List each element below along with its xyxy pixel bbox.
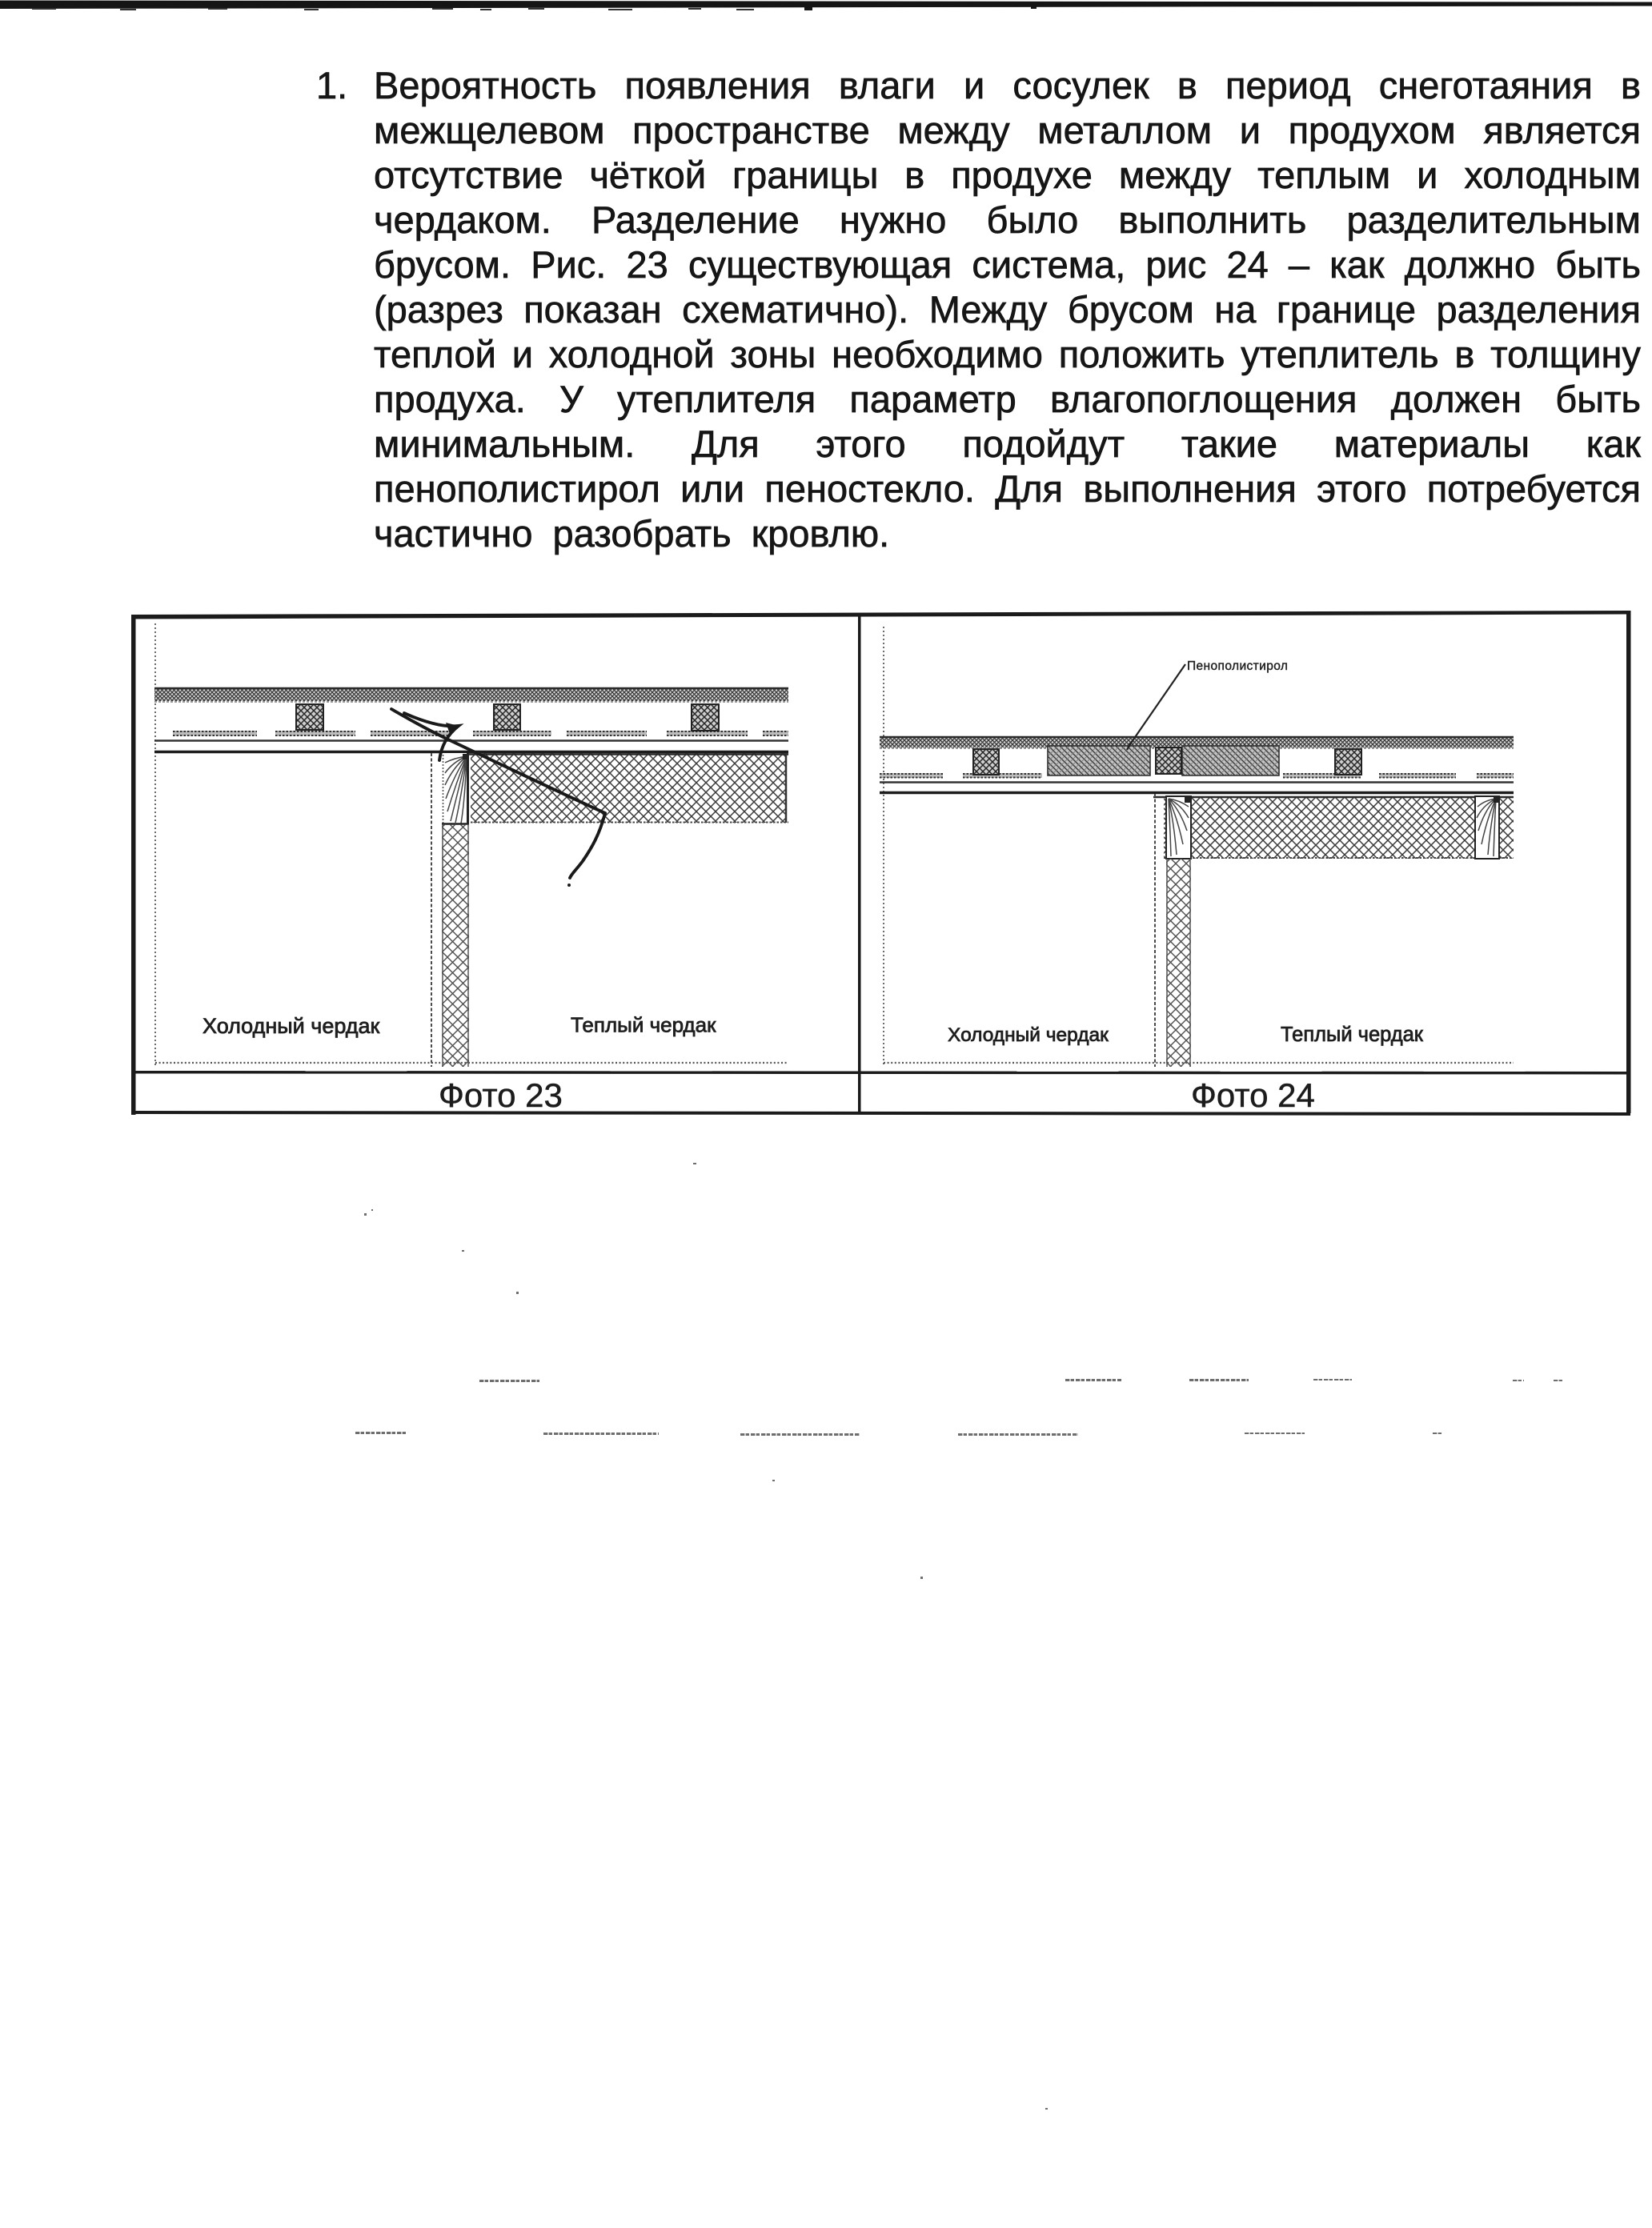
svg-text:Теплый чердак: Теплый чердак	[571, 1013, 716, 1037]
svg-text:Теплый чердак: Теплый чердак	[1281, 1024, 1424, 1046]
svg-text:Пенополистирол: Пенополистирол	[1187, 659, 1288, 673]
svg-text:Фото 24: Фото 24	[1191, 1076, 1315, 1114]
svg-text:Холодный чердак: Холодный чердак	[202, 1014, 380, 1038]
svg-text:Фото 23: Фото 23	[439, 1076, 563, 1114]
svg-text:Холодный чердак: Холодный чердак	[948, 1024, 1109, 1046]
